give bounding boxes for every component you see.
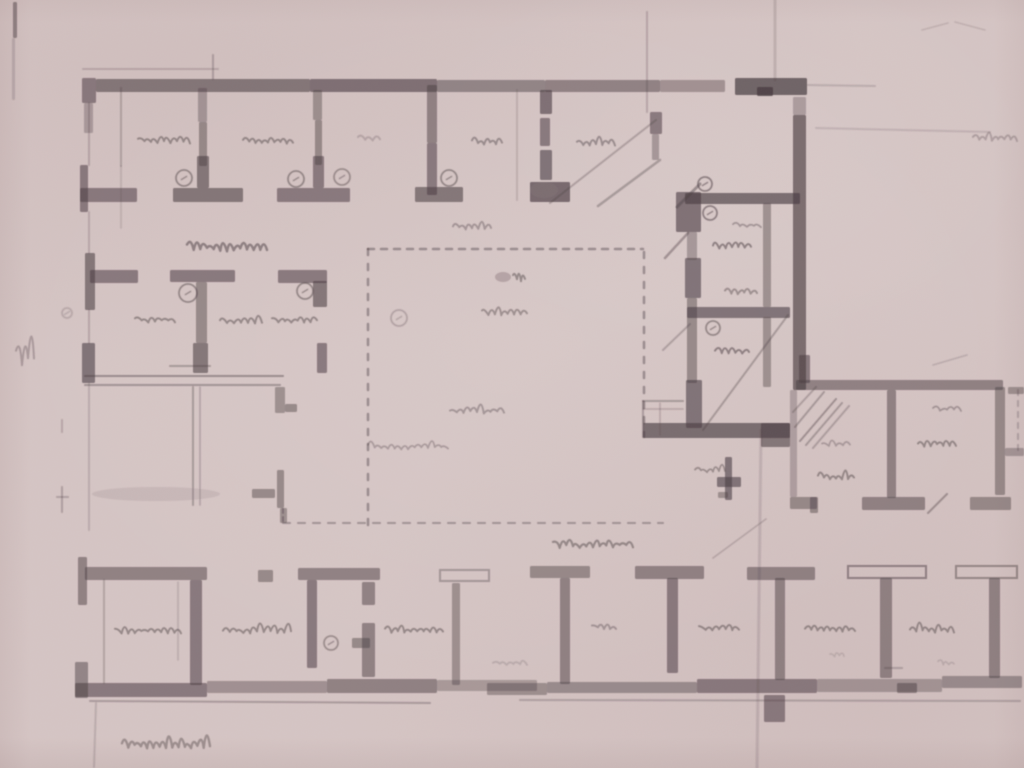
floor-plan-drawing: [0, 0, 1024, 768]
film-grain: [0, 0, 1024, 768]
scanned-floorplan-page: [0, 0, 1024, 768]
